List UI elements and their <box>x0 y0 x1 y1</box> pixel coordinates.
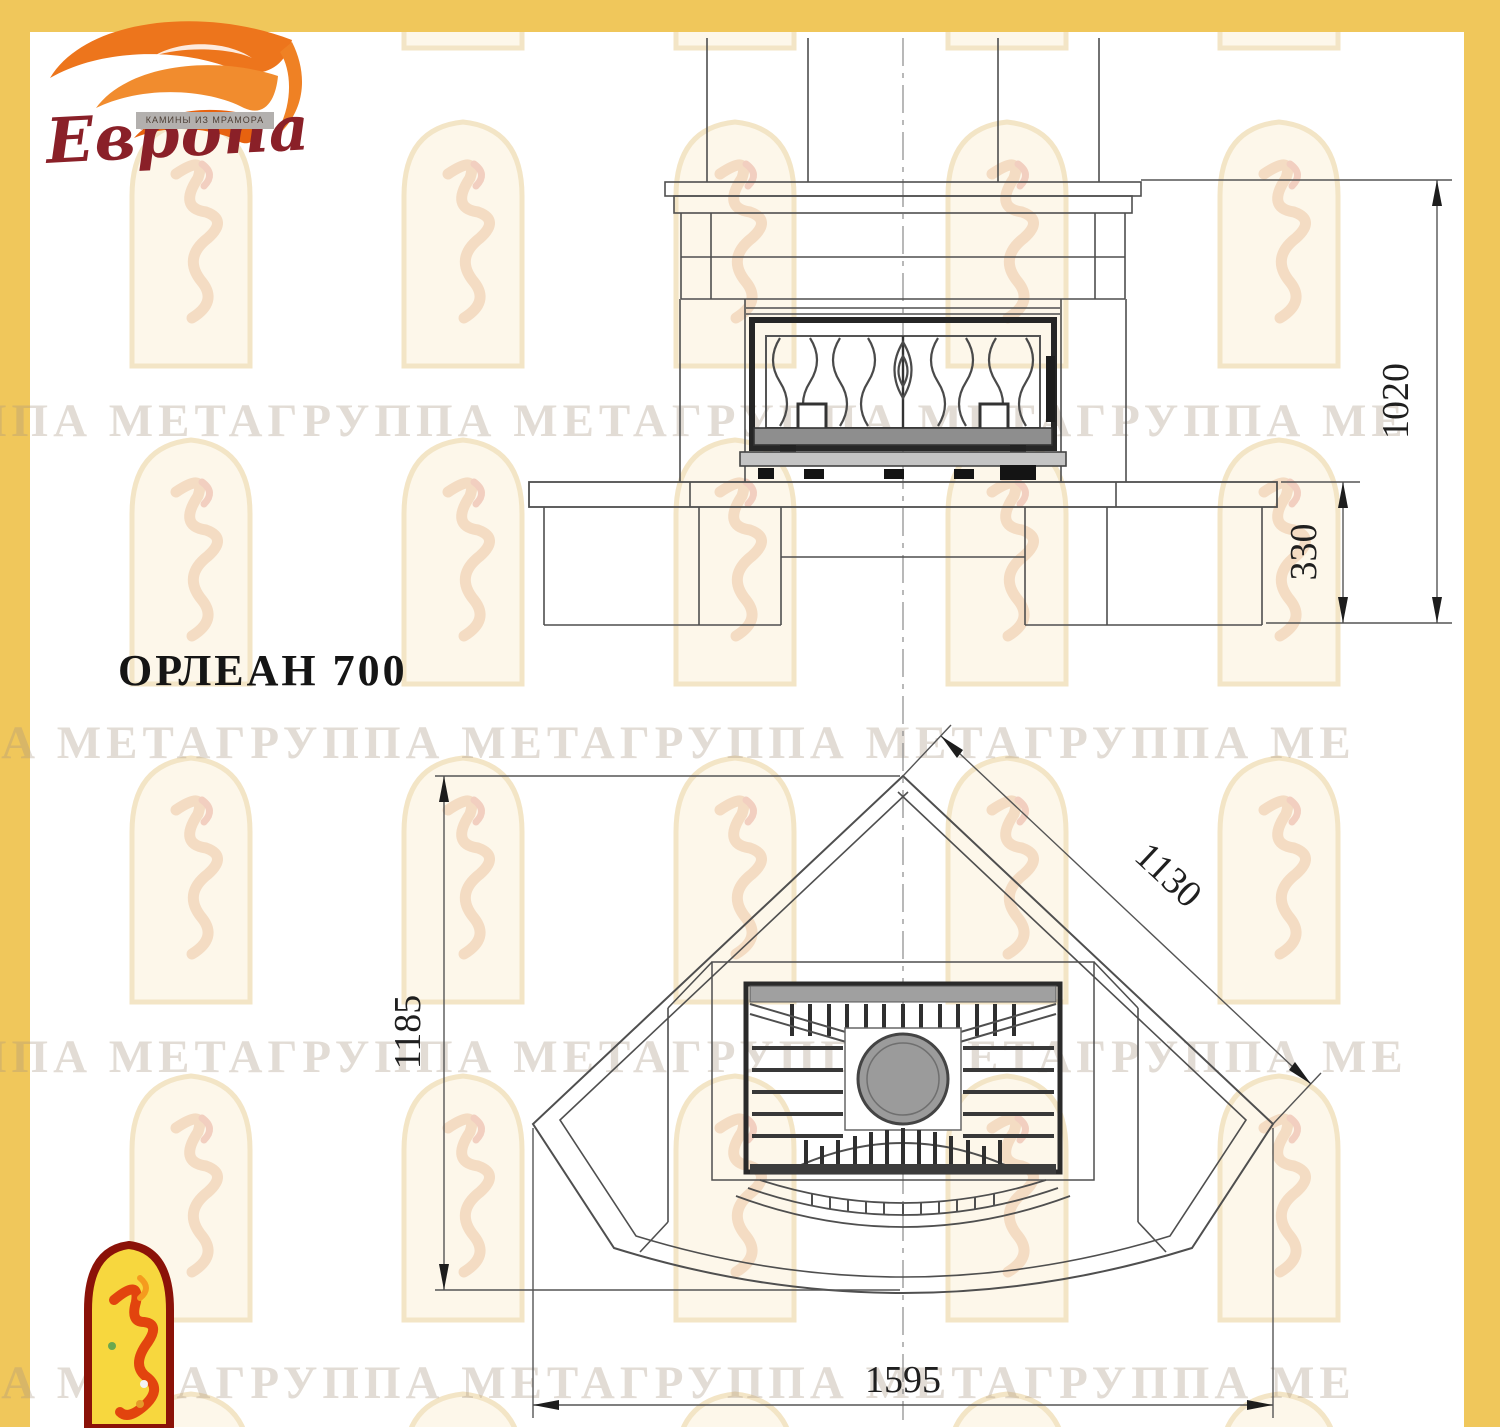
vent-slots <box>758 465 1036 480</box>
brand-tagline: КАМИНЫ ИЗ МРАМОРА <box>136 112 274 129</box>
dimension-lines <box>435 180 1452 1418</box>
step-ticks <box>812 1194 994 1216</box>
dim-plan-side: 1130 <box>1127 834 1210 916</box>
ash-lip <box>754 428 1052 445</box>
brand-logo: Европа КАМИНЫ ИЗ МРАМОРА <box>34 12 314 192</box>
dim-overall-height: 1020 <box>1375 363 1417 439</box>
dim-base-height: 330 <box>1283 524 1325 581</box>
model-title: ОРЛЕАН 700 <box>118 645 408 696</box>
hearth-plate <box>740 452 1066 466</box>
technical-drawing: 1020 330 1185 1130 1595 <box>0 0 1500 1427</box>
dim-plan-depth: 1185 <box>387 995 429 1070</box>
brand-name: Европа <box>44 91 311 178</box>
flue-collar <box>858 1034 948 1124</box>
arch-emblem <box>82 1238 176 1428</box>
door-handle <box>1046 356 1055 422</box>
dim-plan-width: 1595 <box>865 1359 941 1401</box>
